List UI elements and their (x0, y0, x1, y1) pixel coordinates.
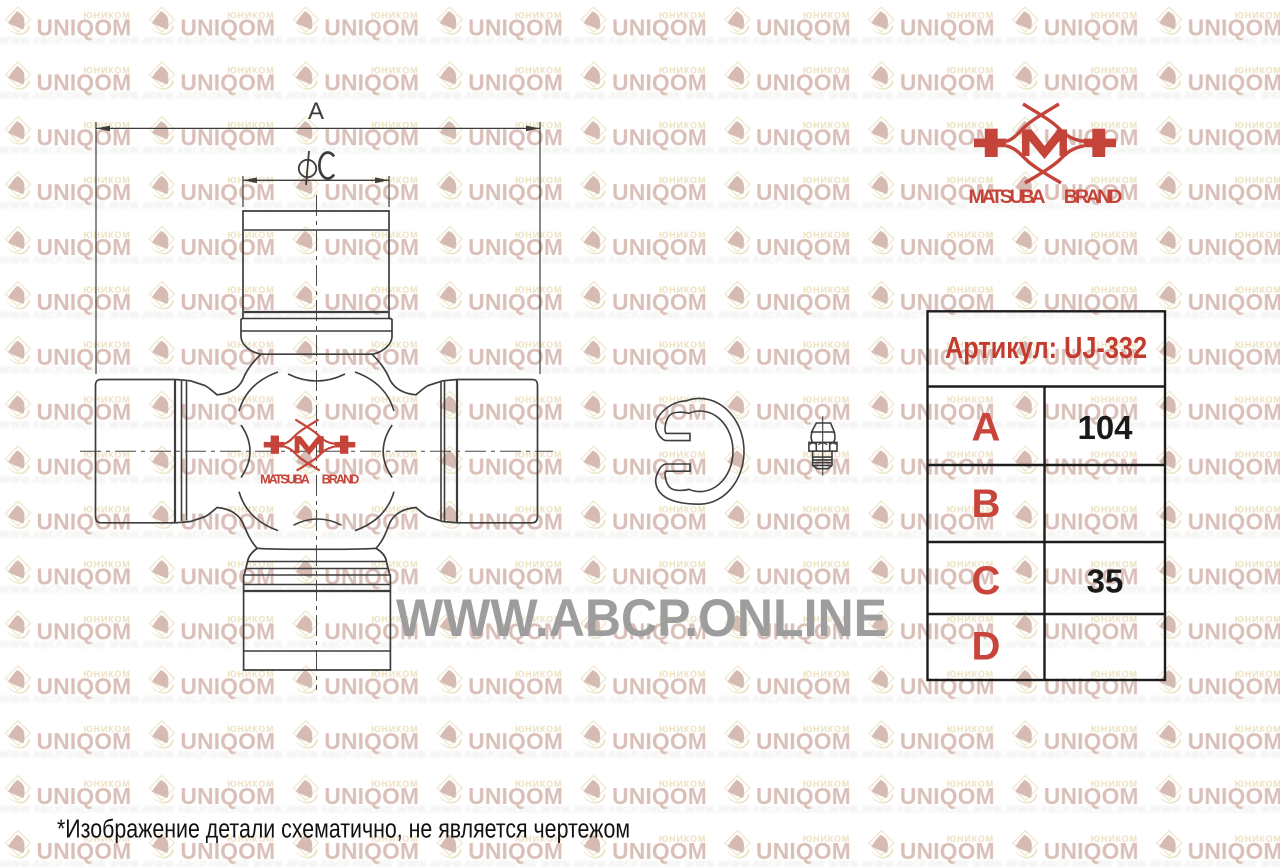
svg-text:35: 35 (1087, 563, 1124, 600)
svg-text:WWW.ABCP.ONLINE: WWW.ABCP.ONLINE (396, 589, 887, 648)
svg-text:A: A (308, 98, 324, 125)
svg-text:104: 104 (1077, 409, 1133, 446)
svg-text:D: D (972, 625, 1001, 669)
svg-text:Артикул: UJ-332: Артикул: UJ-332 (945, 330, 1147, 365)
svg-text:B: B (972, 482, 1001, 526)
svg-text:A: A (972, 406, 1001, 450)
svg-text:*Изображение детали схематично: *Изображение детали схематично, не являе… (57, 816, 630, 844)
svg-text:C: C (972, 559, 1001, 603)
